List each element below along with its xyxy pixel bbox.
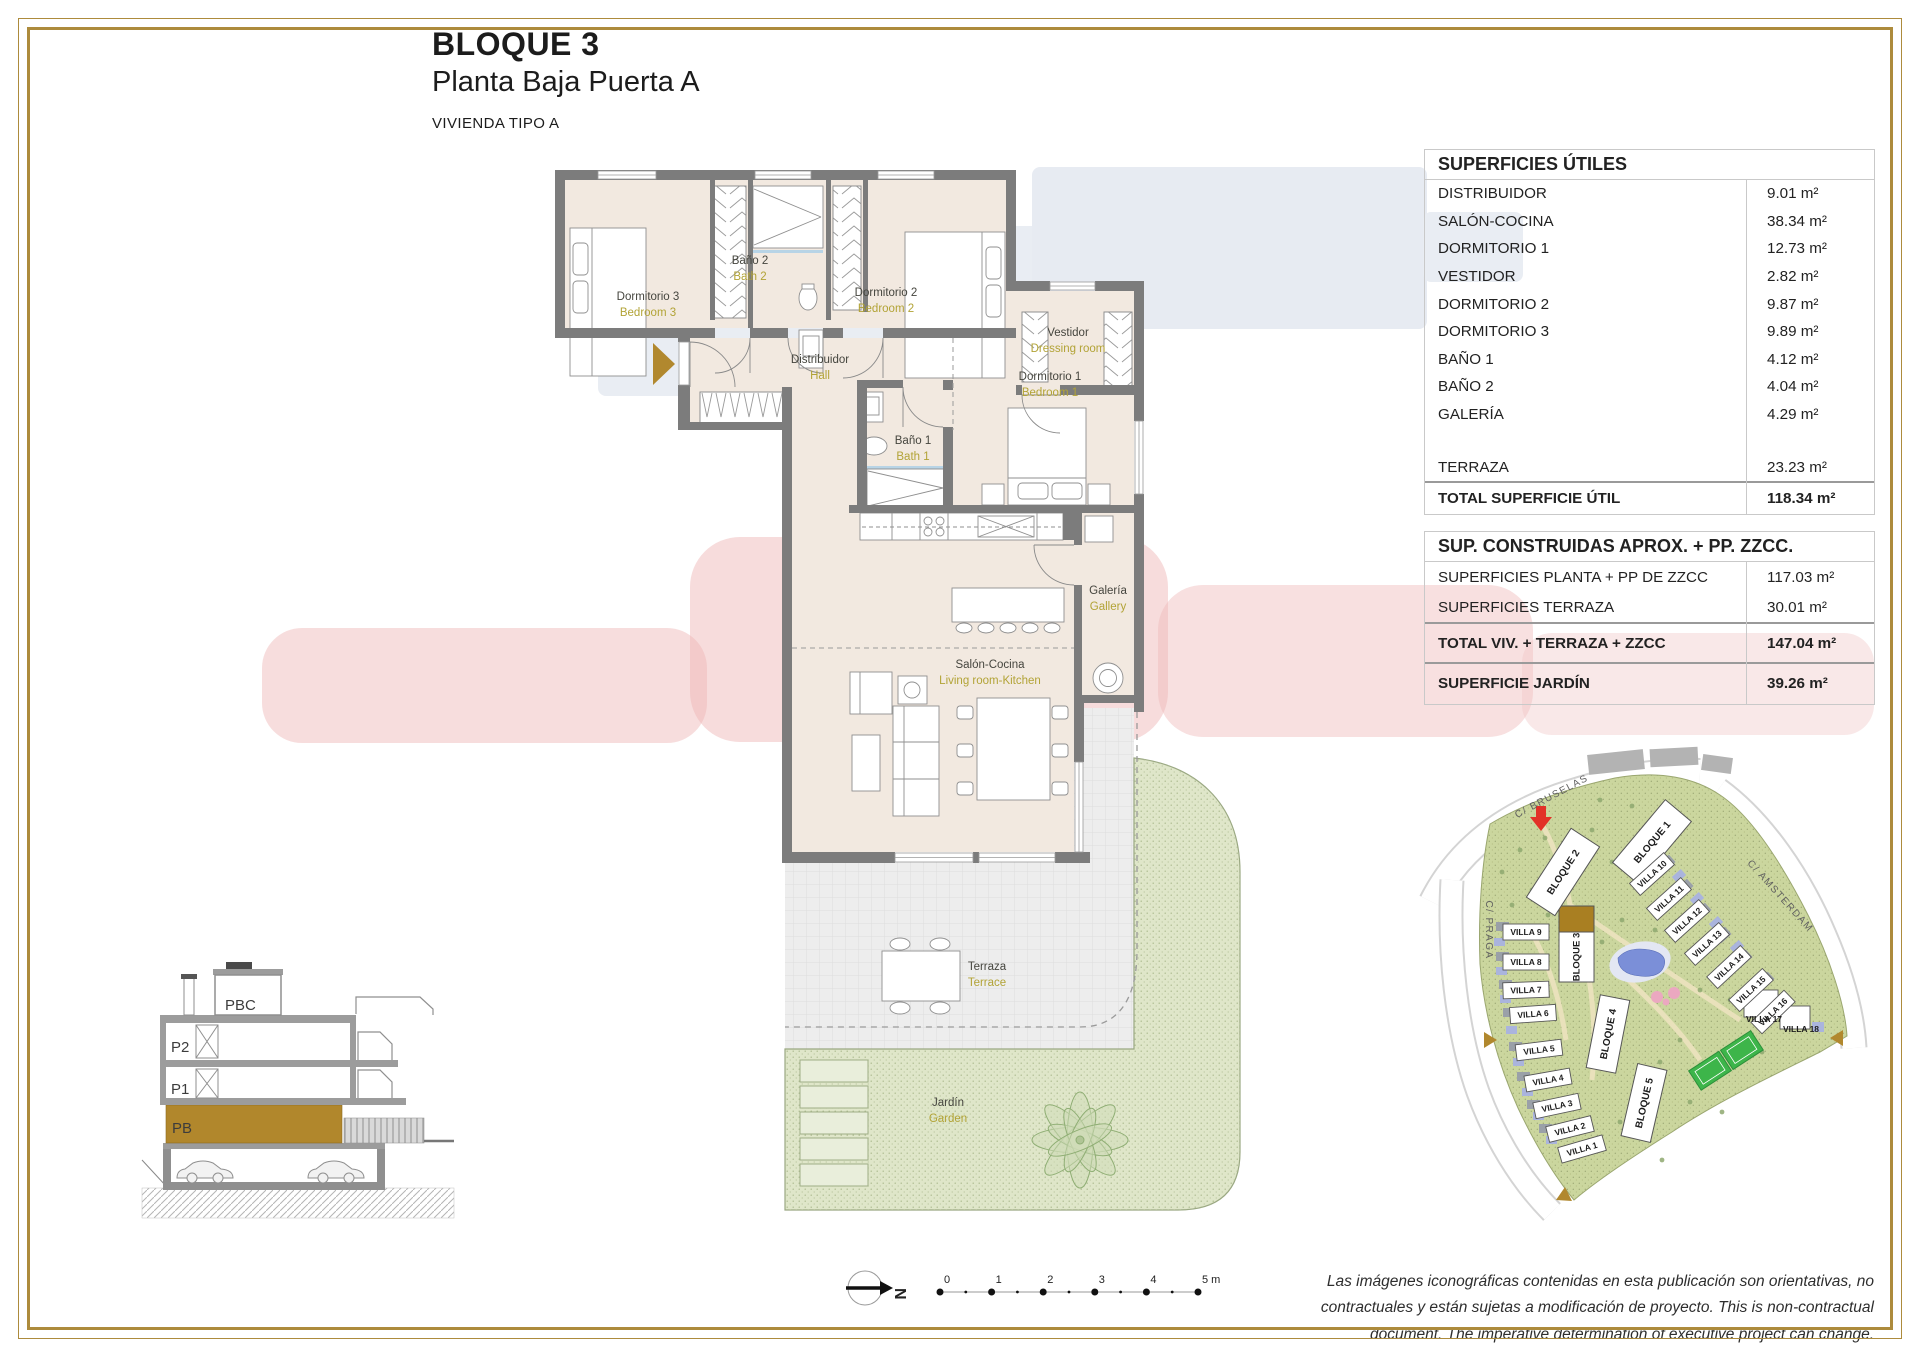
scale-tick-label: 0 (944, 1274, 950, 1286)
page-title: BLOQUE 3 (432, 26, 700, 63)
tree (1510, 903, 1515, 908)
room-label-en: Dressing room (1031, 343, 1106, 355)
title-block: BLOQUE 3 Planta Baja Puerta A VIVIENDA T… (432, 26, 700, 132)
scale-bar: 012345 m N (835, 1252, 1230, 1325)
row-value: 38.34 m² (1746, 213, 1827, 230)
row-value: 4.29 m² (1746, 406, 1819, 423)
table-row: SALÓN-COCINA38.34 m² (1425, 208, 1874, 236)
tree (1688, 1100, 1693, 1105)
room-label-en: Terrace (968, 977, 1006, 989)
room-label-en: Bath 2 (733, 271, 766, 283)
room-label-en: Bedroom 2 (858, 303, 914, 315)
tree (1660, 1158, 1665, 1163)
table-row: DORMITORIO 29.87 m² (1425, 290, 1874, 318)
row-value: 9.87 m² (1746, 296, 1819, 313)
row-label: BAÑO 1 (1425, 351, 1746, 368)
sup-construidas-table: SUP. CONSTRUIDAS APROX. + PP. ZZCC. SUPE… (1424, 531, 1875, 705)
scale-dot (937, 1289, 944, 1296)
site-plan: C/ BRUSELASC/ PRAGAC/ AMSTERDAMBLOQUE 1B… (1395, 748, 1895, 1240)
superficies-utiles-table: SUPERFICIES ÚTILES DISTRIBUIDOR9.01 m²SA… (1424, 149, 1875, 515)
scale-dot (1195, 1289, 1202, 1296)
table-row: TERRAZA23.23 m² (1425, 453, 1874, 481)
table-row: GALERÍA4.29 m² (1425, 401, 1874, 429)
parked-cars (177, 1161, 364, 1183)
section-level-label: P2 (171, 1039, 189, 1056)
page-subtitle: Planta Baja Puerta A (432, 66, 700, 99)
row-value: 147.04 m² (1746, 635, 1836, 652)
table-row: DORMITORIO 39.89 m² (1425, 318, 1874, 346)
row-value: 118.34 m² (1746, 490, 1835, 507)
tree (1630, 804, 1635, 809)
row-label: TERRAZA (1425, 459, 1746, 476)
villa-label: VILLA 9 (1510, 927, 1542, 937)
floor-plan-sheet: BLOQUE 3 Planta Baja Puerta A VIVIENDA T… (0, 0, 1920, 1357)
building-section-diagram: PBCP2P1PB (138, 925, 458, 1225)
scale-dot (988, 1289, 995, 1296)
villa-label: VILLA 8 (1510, 957, 1542, 967)
row-value: 4.04 m² (1746, 378, 1819, 395)
room-label-en: Bedroom 3 (620, 307, 676, 319)
room-label-en: Bath 1 (896, 451, 929, 463)
table-row: DISTRIBUIDOR9.01 m² (1425, 180, 1874, 208)
room-label-en: Bedroom 1 (1022, 387, 1078, 399)
room-label-es: Dormitorio 2 (855, 287, 918, 299)
garden-steps (800, 1060, 868, 1186)
tree (1518, 848, 1523, 853)
tree (1698, 988, 1703, 993)
garden-plant (1032, 1092, 1128, 1188)
scale-minor-dot (1171, 1291, 1174, 1294)
scale-minor-dot (964, 1291, 967, 1294)
section-level-label: PB (172, 1120, 192, 1137)
row-label: DORMITORIO 1 (1425, 240, 1746, 257)
villa-label: VILLA 18 (1783, 1024, 1819, 1034)
room-label-es: Baño 2 (732, 255, 768, 267)
tree (1658, 1060, 1663, 1065)
table-row: BAÑO 14.12 m² (1425, 346, 1874, 374)
apartment-floor-plan: Dormitorio 3Bedroom 3Baño 2Bath 2Dormito… (548, 158, 1262, 1228)
scale-tick-label: 1 (996, 1274, 1002, 1286)
room-label-es: Salón-Cocina (955, 659, 1025, 671)
row-label: SUPERFICIE JARDÍN (1425, 675, 1746, 692)
row-label: VESTIDOR (1425, 268, 1746, 285)
row-label: BAÑO 2 (1425, 378, 1746, 395)
tree (1500, 870, 1505, 875)
row-label: SUPERFICIES TERRAZA (1425, 599, 1746, 616)
table-column-divider (1746, 562, 1747, 704)
row-value: 4.12 m² (1746, 351, 1819, 368)
room-label-es: Vestidor (1047, 327, 1089, 339)
row-value: 117.03 m² (1746, 569, 1834, 586)
room-label-en: Garden (929, 1113, 967, 1125)
street-label: C/ PRAGA (1483, 901, 1494, 960)
room-label-es: Dormitorio 1 (1019, 371, 1082, 383)
room-label-es: Galería (1089, 585, 1127, 597)
row-label: DISTRIBUIDOR (1425, 185, 1746, 202)
row-label: SALÓN-COCINA (1425, 213, 1746, 230)
room-label-es: Dormitorio 3 (617, 291, 680, 303)
row-value: 9.89 m² (1746, 323, 1819, 340)
table-row: SUPERFICIE JARDÍN39.26 m² (1425, 662, 1874, 702)
table-row: TOTAL VIV. + TERRAZA + ZZCC147.04 m² (1425, 622, 1874, 662)
scale-dot (1091, 1289, 1098, 1296)
tree (1678, 1038, 1683, 1043)
row-value: 23.23 m² (1746, 459, 1827, 476)
table-column-divider (1746, 180, 1747, 514)
tree (1598, 798, 1603, 803)
table-row: SUPERFICIES PLANTA + PP DE ZZCC117.03 m² (1425, 562, 1874, 592)
scale-minor-dot (1119, 1291, 1122, 1294)
tree (1620, 918, 1625, 923)
room-label-es: Jardín (932, 1097, 964, 1109)
row-value: 9.01 m² (1746, 185, 1819, 202)
row-label: SUPERFICIES PLANTA + PP DE ZZCC (1425, 569, 1746, 586)
tree (1543, 836, 1548, 841)
scale-minor-dot (1016, 1291, 1019, 1294)
row-label: GALERÍA (1425, 406, 1746, 423)
row-label: DORMITORIO 2 (1425, 296, 1746, 313)
room-label-es: Baño 1 (895, 435, 931, 447)
scale-tick-label: 5 m (1202, 1274, 1220, 1286)
row-label: DORMITORIO 3 (1425, 323, 1746, 340)
north-arrow (846, 1281, 893, 1295)
scale-dot (1040, 1289, 1047, 1296)
block-label: BLOQUE 3 (1572, 933, 1583, 982)
table-row: BAÑO 24.04 m² (1425, 373, 1874, 401)
room-label-en: Hall (810, 370, 830, 382)
row-label: TOTAL SUPERFICIE ÚTIL (1425, 490, 1746, 507)
north-letter: N (891, 1288, 908, 1300)
row-value: 30.01 m² (1746, 599, 1827, 616)
tree (1546, 913, 1551, 918)
villa-label: VILLA 17 (1746, 1014, 1782, 1024)
table-row: TOTAL SUPERFICIE ÚTIL118.34 m² (1425, 481, 1874, 514)
tree (1653, 928, 1658, 933)
table-row: SUPERFICIES TERRAZA30.01 m² (1425, 592, 1874, 622)
room-label-en: Living room-Kitchen (939, 675, 1041, 687)
row-label: TOTAL VIV. + TERRAZA + ZZCC (1425, 635, 1746, 652)
dwelling-type-label: VIVIENDA TIPO A (432, 115, 700, 132)
villa-label: VILLA 7 (1510, 984, 1542, 995)
scale-minor-dot (1068, 1291, 1071, 1294)
legal-disclaimer: Las imágenes iconográficas contenidas en… (1254, 1269, 1874, 1349)
room-label-es: Terraza (968, 961, 1007, 973)
row-value: 12.73 m² (1746, 240, 1827, 257)
scale-tick-label: 2 (1047, 1274, 1053, 1286)
tree (1618, 1120, 1623, 1125)
scale-dot (1143, 1289, 1150, 1296)
scale-tick-label: 3 (1099, 1274, 1105, 1286)
row-value: 2.82 m² (1746, 268, 1819, 285)
table-title: SUPERFICIES ÚTILES (1425, 150, 1874, 180)
table-row: VESTIDOR2.82 m² (1425, 263, 1874, 291)
tree (1590, 828, 1595, 833)
table-title: SUP. CONSTRUIDAS APROX. + PP. ZZCC. (1425, 532, 1874, 562)
tree (1600, 940, 1605, 945)
row-value: 39.26 m² (1746, 675, 1828, 692)
entrance-arrow (653, 343, 675, 385)
scale-tick-label: 4 (1150, 1274, 1156, 1286)
room-label-es: Distribuidor (791, 354, 849, 366)
room-label-en: Gallery (1090, 601, 1127, 613)
tree (1720, 1110, 1725, 1115)
table-row: DORMITORIO 112.73 m² (1425, 235, 1874, 263)
section-level-label: P1 (171, 1081, 189, 1098)
section-level-label: PBC (225, 997, 256, 1014)
